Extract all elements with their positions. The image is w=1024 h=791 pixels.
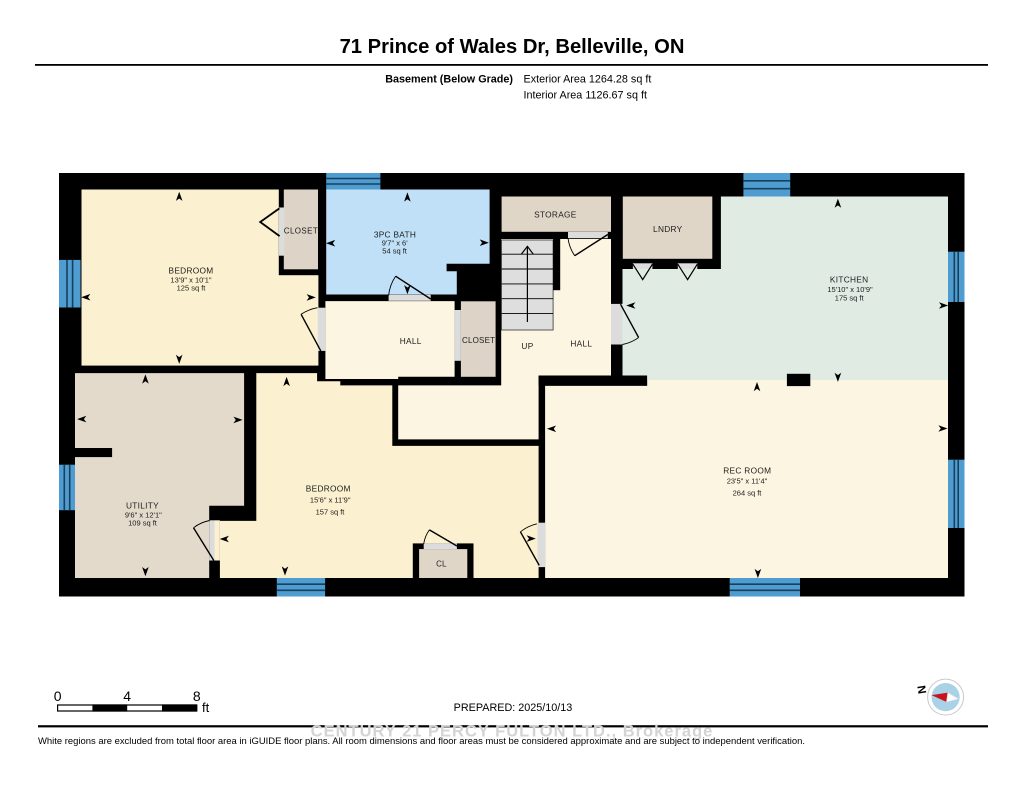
svg-text:STORAGE: STORAGE [534, 210, 577, 220]
svg-text:CL: CL [436, 560, 447, 569]
svg-text:Interior Area 1126.67 sq ft: Interior Area 1126.67 sq ft [524, 89, 647, 101]
svg-text:PREPARED: 2025/10/13: PREPARED: 2025/10/13 [454, 702, 573, 714]
svg-text:264 sq ft: 264 sq ft [733, 488, 763, 497]
svg-text:CLOSET: CLOSET [462, 336, 495, 345]
svg-text:8: 8 [193, 688, 201, 704]
svg-text:15'6" x 11'9": 15'6" x 11'9" [310, 496, 351, 505]
svg-text:REC ROOM: REC ROOM [723, 465, 771, 475]
svg-text:0: 0 [54, 688, 62, 704]
svg-text:71 Prince of Wales Dr, Bellevi: 71 Prince of Wales Dr, Belleville, ON [340, 36, 685, 58]
svg-text:HALL: HALL [400, 336, 422, 346]
svg-text:ft: ft [202, 700, 210, 715]
svg-text:BEDROOM: BEDROOM [169, 266, 214, 276]
svg-text:HALL: HALL [570, 338, 592, 348]
svg-text:White regions are excluded fro: White regions are excluded from total fl… [38, 736, 805, 747]
svg-text:109 sq ft: 109 sq ft [128, 518, 158, 527]
svg-text:Exterior Area 1264.28 sq ft: Exterior Area 1264.28 sq ft [524, 74, 652, 86]
svg-text:LNDRY: LNDRY [653, 224, 683, 234]
svg-text:15'10" x 10'9": 15'10" x 10'9" [827, 285, 873, 294]
svg-text:UP: UP [521, 341, 533, 351]
svg-text:CLOSET: CLOSET [284, 227, 318, 236]
svg-text:54 sq ft: 54 sq ft [382, 247, 408, 256]
svg-text:Basement (Below Grade): Basement (Below Grade) [385, 74, 513, 86]
svg-text:N: N [916, 684, 929, 694]
svg-text:157 sq ft: 157 sq ft [316, 507, 346, 516]
svg-text:UTILITY: UTILITY [126, 501, 159, 511]
svg-text:175 sq ft: 175 sq ft [835, 294, 865, 303]
svg-text:23'5" x 11'4": 23'5" x 11'4" [727, 477, 768, 486]
svg-text:KITCHEN: KITCHEN [830, 275, 869, 285]
svg-text:125 sq ft: 125 sq ft [177, 284, 207, 293]
svg-text:BEDROOM: BEDROOM [306, 483, 351, 493]
svg-text:4: 4 [123, 688, 131, 704]
